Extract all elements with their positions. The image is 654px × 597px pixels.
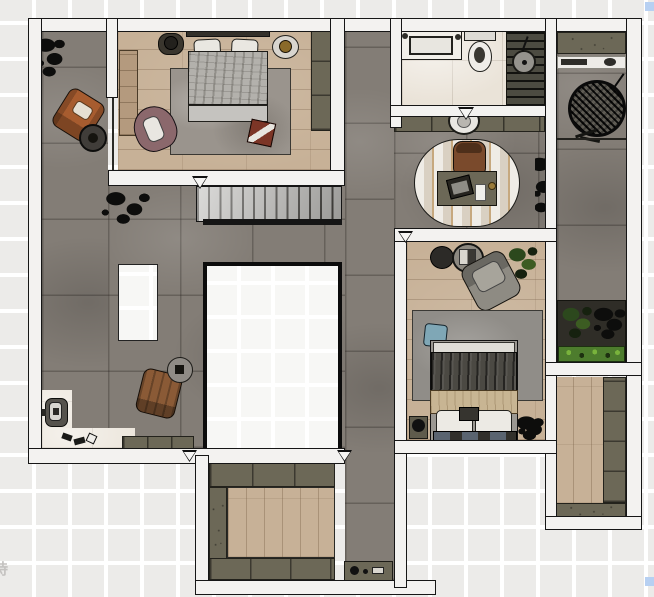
vanity-items: [455, 34, 461, 40]
console-decor: [363, 569, 368, 574]
selection-handle-top-right[interactable]: [645, 2, 654, 11]
bedroom2-side-table-a: [430, 246, 454, 269]
armchair-cushion: [71, 99, 95, 121]
right-balcony-floor: [557, 32, 626, 302]
balcony-divider-line: [557, 138, 626, 140]
staircase-shadow-bar: [203, 219, 342, 225]
hall-side-table: [167, 357, 193, 383]
planter-ground-cover: [558, 346, 625, 362]
design-canvas: 持: [0, 0, 654, 597]
shelf-items: [604, 58, 616, 66]
console-teapot: [350, 566, 359, 575]
desk-chair-back: [456, 143, 482, 153]
notebook: [475, 184, 486, 201]
balcony-planter-shelf: [557, 32, 626, 54]
wall-bedroom2-bottom: [394, 440, 557, 454]
central-floor-void: [203, 262, 342, 455]
shower-head-center: [522, 60, 527, 65]
bedroom1-wardrobe: [311, 29, 332, 131]
wall-closet-left: [195, 455, 209, 595]
laptop-keyboard: [451, 180, 469, 195]
entry-fixture: [45, 398, 68, 427]
toilet-tank: [464, 31, 496, 41]
door-wedge-hall: [182, 450, 197, 462]
planter-shrub: [592, 300, 628, 345]
bedroom2-corner-plant: [518, 414, 544, 442]
floor-edge-line: [112, 96, 114, 172]
table-decor: [88, 133, 98, 143]
closet-floor-inlay: [227, 487, 335, 558]
toilet-bowl: [468, 41, 492, 72]
watermark-text: 持: [0, 558, 8, 579]
wall-left: [28, 18, 42, 464]
closet-cabinet-left: [209, 487, 227, 560]
bath-sink: [409, 36, 453, 55]
wall-planter-bottom: [545, 362, 642, 376]
vanity-items: [402, 33, 408, 39]
wall-corridor-right: [394, 230, 407, 588]
desk-cup: [488, 182, 496, 190]
bedroom2-lamp: [412, 419, 425, 432]
terrace-side-table: [79, 124, 107, 152]
lamp-right: [279, 40, 292, 53]
hall-plant: [96, 184, 158, 230]
door-wedge-bedroom1: [192, 176, 208, 189]
lamp-left: [164, 36, 178, 50]
wall-bedroom1-bottom: [108, 170, 345, 186]
floorplan[interactable]: [0, 0, 654, 597]
console-decor: [372, 567, 384, 574]
lounge-seat: [470, 259, 508, 294]
wall-bedroom1-right: [330, 18, 345, 186]
shelf-items: [561, 59, 587, 65]
closet-cabinet-top: [209, 460, 335, 487]
corridor-floor: [345, 32, 394, 580]
door-wedge-corridor: [337, 450, 352, 462]
hanging-egg-chair: [568, 80, 626, 137]
wall-outer-right: [626, 18, 642, 530]
wall-storage-bottom: [545, 516, 642, 530]
selection-handle-bottom-right[interactable]: [645, 577, 654, 586]
wall-bedroom2-top: [394, 228, 557, 242]
planter-shrub: [557, 298, 597, 345]
bedroom2-plant: [504, 238, 542, 286]
storage-room-floor: [555, 377, 603, 503]
bed2-pad: [459, 407, 479, 421]
table-lamp: [175, 365, 184, 374]
bed2-duvet: [431, 352, 517, 392]
wall-bedroom1-left: [106, 18, 118, 98]
entry-fixture-core: [53, 408, 59, 415]
white-island: [118, 264, 158, 341]
closet-cabinet-bottom: [209, 558, 335, 580]
red-tray-table: [247, 119, 276, 148]
storage-cabinet-right: [603, 377, 626, 503]
chair-cushion: [141, 114, 166, 144]
staircase: [196, 186, 342, 222]
bed1-duvet: [188, 51, 268, 105]
shower-head: [512, 50, 536, 74]
toilet-seat: [474, 47, 485, 63]
door-wedge-bathroom: [458, 107, 474, 120]
door-wedge-bedroom2: [398, 231, 413, 243]
